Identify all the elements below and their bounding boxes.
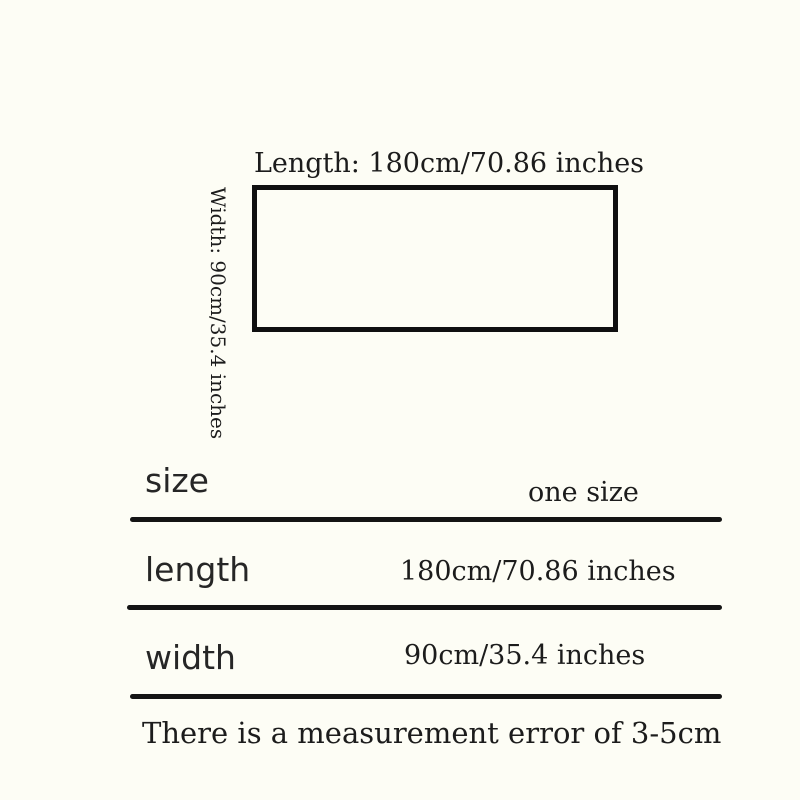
measurement-note: There is a measurement error of 3-5cm [142, 716, 721, 750]
width-row-value: 90cm/35.4 inches [404, 640, 645, 671]
table-divider [130, 694, 722, 699]
width-row-label: width [145, 638, 236, 677]
table-divider [127, 605, 722, 610]
size-row-label: size [145, 461, 209, 500]
table-divider [130, 517, 722, 522]
length-row-label: length [145, 550, 250, 589]
size-row-value: one size [528, 477, 639, 508]
product-size-chart: Length: 180cm/70.86 inches Width: 90cm/3… [0, 0, 800, 800]
length-row-value: 180cm/70.86 inches [400, 556, 676, 587]
product-outline-rectangle [252, 185, 618, 332]
width-dimension-label: Width: 90cm/35.4 inches [206, 187, 230, 439]
length-dimension-label: Length: 180cm/70.86 inches [252, 148, 646, 179]
